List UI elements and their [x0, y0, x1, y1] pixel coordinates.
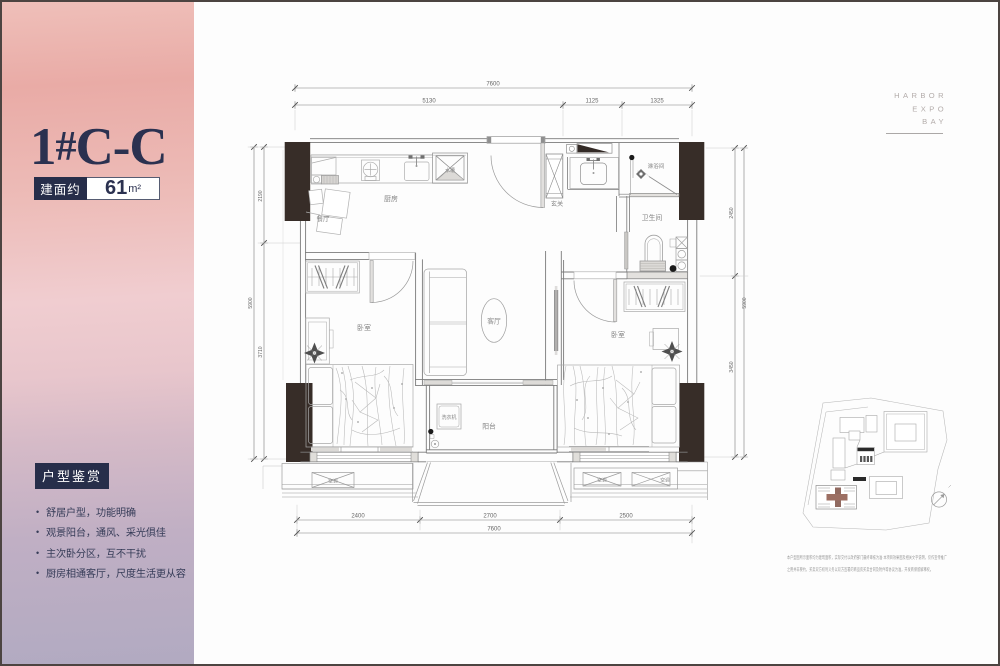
svg-text:2450: 2450	[729, 207, 735, 218]
svg-text:厨房: 厨房	[384, 194, 398, 203]
svg-text:本户型图所示面积均为建筑面积，实际交付以政府部门最终审核为准: 本户型图所示面积均为建筑面积，实际交付以政府部门最终审核为准·本项目效果图及相关…	[787, 554, 947, 561]
svg-text:3450: 3450	[729, 361, 735, 372]
svg-text:7600: 7600	[486, 82, 500, 88]
svg-text:玄关: 玄关	[551, 200, 563, 208]
svg-text:空调: 空调	[597, 477, 607, 484]
svg-text:2400: 2400	[351, 514, 365, 520]
svg-text:5900: 5900	[248, 297, 254, 308]
svg-text:BAY: BAY	[922, 117, 947, 126]
svg-text:5900: 5900	[742, 297, 748, 308]
svg-text:3710: 3710	[258, 346, 264, 357]
svg-text:5130: 5130	[422, 99, 436, 105]
svg-text:2700: 2700	[483, 514, 497, 520]
svg-text:之用并非要约，买卖双方权利义务以双方签署的商品房买卖合同及附: 之用并非要约，买卖双方权利义务以双方签署的商品房买卖合同及附件等协议为准，开发商…	[787, 566, 933, 573]
svg-text:洗衣机: 洗衣机	[441, 414, 456, 421]
svg-text:2500: 2500	[619, 514, 633, 520]
svg-text:客厅: 客厅	[487, 317, 501, 326]
svg-text:淋浴间: 淋浴间	[648, 162, 665, 170]
svg-text:空调: 空调	[328, 478, 338, 485]
svg-text:HARBOR: HARBOR	[894, 91, 947, 100]
svg-text:卧室: 卧室	[357, 323, 371, 332]
svg-text:阳台: 阳台	[482, 422, 496, 431]
svg-text:卧室: 卧室	[611, 330, 625, 339]
svg-text:1125: 1125	[586, 99, 600, 105]
svg-text:餐厅: 餐厅	[317, 214, 331, 223]
svg-text:EXPO: EXPO	[912, 105, 947, 114]
svg-text:2190: 2190	[258, 190, 264, 201]
svg-text:7600: 7600	[487, 527, 501, 533]
svg-text:卫生间: 卫生间	[642, 213, 663, 222]
svg-text:水槽: 水槽	[445, 167, 455, 174]
svg-text:1325: 1325	[650, 99, 664, 105]
svg-text:空调: 空调	[660, 477, 670, 484]
